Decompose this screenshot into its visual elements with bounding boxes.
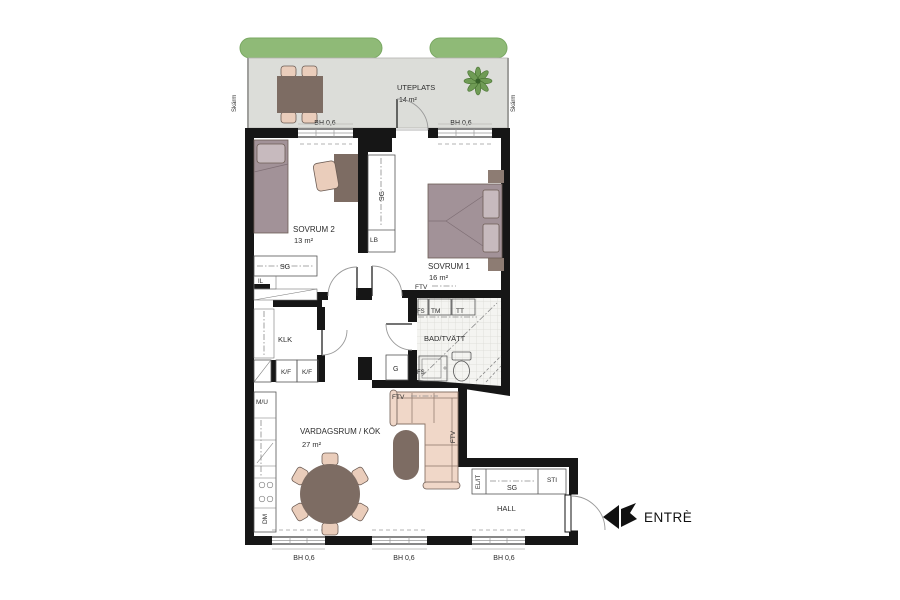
hedge-left <box>240 38 382 58</box>
wall-segment <box>427 536 472 545</box>
bed-pillow <box>483 190 499 218</box>
il-label: IL <box>258 279 264 285</box>
klk-label: KLK <box>278 335 292 344</box>
wall-segment <box>402 290 510 298</box>
wall-segment <box>458 379 467 467</box>
kf-label: K/F <box>281 369 291 376</box>
burner <box>267 482 273 488</box>
closet-sg-sovrum2: SG IL <box>254 256 317 300</box>
nightstand <box>488 170 504 183</box>
entry-door <box>565 494 605 532</box>
kitchen-counter <box>254 392 276 532</box>
hall-label: HALL <box>497 504 516 513</box>
patio-chair <box>281 66 296 77</box>
dm-label: DM <box>262 514 269 524</box>
uteplats-area: 14 m² <box>399 97 418 104</box>
hedge-right <box>430 38 507 58</box>
wall-segment <box>273 300 322 307</box>
entry-door-leaf <box>565 495 571 532</box>
wall-segment <box>317 307 325 330</box>
burner <box>267 496 273 502</box>
window-living-2 <box>372 530 427 549</box>
desk-chair <box>313 160 340 191</box>
floor-plan: Skärm Skärm UTEPLATS 14 m² BH 0,6 <box>0 0 900 600</box>
g-label: G <box>393 366 398 373</box>
kitchen-units-north: K/F K/F <box>254 360 318 382</box>
ftv-label: FTV <box>392 394 405 401</box>
kf-label: K/F <box>302 369 312 376</box>
wall-segment <box>358 137 368 253</box>
sg-label: SG <box>379 191 386 201</box>
sg-label: SG <box>507 485 517 492</box>
wall-segment <box>458 458 578 467</box>
fs-label: FS <box>417 309 425 315</box>
patio-table <box>277 76 323 113</box>
wall-segment <box>317 292 328 300</box>
wall-segment <box>356 288 372 300</box>
wall-segment <box>366 137 392 152</box>
wall-segment <box>569 467 578 494</box>
burner <box>259 496 265 502</box>
ftv-label: FTV <box>415 284 428 291</box>
floor-plan-page: Skärm Skärm UTEPLATS 14 m² BH 0,6 <box>0 0 900 600</box>
bh-label: BH 0,6 <box>393 555 415 562</box>
sovrum2-label: SOVRUM 2 <box>293 225 335 234</box>
sovrum1-door <box>372 266 402 296</box>
kitchen-run: M/U DM <box>254 392 276 532</box>
mu-label: M/U <box>256 399 268 406</box>
room-sovrum2: SOVRUM 2 13 m² SG IL <box>254 140 358 300</box>
ftv-label: FTV <box>450 430 457 443</box>
wall-segment <box>353 128 396 138</box>
room-klk: KLK <box>254 309 292 358</box>
entrance: ENTRÈ <box>603 503 692 529</box>
living-label: VARDAGSRUM / KÖK <box>300 427 381 436</box>
sti-label: STI <box>547 477 557 484</box>
sovrum2-area: 13 m² <box>294 236 314 245</box>
lb-label: LB <box>370 237 378 244</box>
sovrum1-area: 16 m² <box>429 273 449 282</box>
elit-label: EL/IT <box>476 474 482 489</box>
room-hall: EL/IT SG STI HALL <box>472 469 566 513</box>
patio-chair <box>281 112 296 123</box>
wall-segment <box>569 531 578 545</box>
living-area: 27 m² <box>302 440 322 449</box>
tt-label: TT <box>456 308 464 315</box>
sovrum2-door <box>328 267 357 296</box>
sg-label: SG <box>280 264 290 271</box>
fs-label: FS <box>417 370 425 376</box>
uteplats-label: UTEPLATS <box>397 83 435 92</box>
sovrum1-label: SOVRUM 1 <box>428 262 470 271</box>
hedges <box>240 38 507 58</box>
wall-segment <box>408 298 417 322</box>
bed-pillow <box>257 144 285 163</box>
entre-label: ENTRÈ <box>644 510 692 525</box>
window-hall <box>472 530 525 549</box>
g-closet: G <box>386 355 408 380</box>
bathroom-label: BAD/TVÄTT <box>424 334 466 343</box>
entrance-arrow-icon <box>603 503 637 529</box>
bh-label: BH 0,6 <box>493 555 515 562</box>
dining-table <box>300 464 360 524</box>
burner <box>259 482 265 488</box>
wall-segment <box>245 128 254 545</box>
wall-segment <box>408 350 417 380</box>
room-living: M/U DM VARDAGSRUM / KÖK 27 m² FTV <box>254 390 460 535</box>
window-living-1 <box>272 530 325 549</box>
plant-icon <box>464 67 492 95</box>
wall-segment <box>325 536 372 545</box>
bh-label: BH 0,6 <box>293 555 315 562</box>
coffee-table <box>393 430 419 480</box>
dining-set <box>291 453 369 535</box>
wall-segment <box>358 357 372 380</box>
dining-chair <box>322 523 338 535</box>
closet-strip: SG LB <box>368 155 395 252</box>
nightstand <box>488 258 504 271</box>
patio-chair <box>302 66 317 77</box>
wall-segment <box>271 360 276 382</box>
bathroom-door <box>386 324 412 350</box>
wall-segment <box>245 536 272 545</box>
patio: Skärm Skärm UTEPLATS 14 m² BH 0,6 <box>232 58 517 128</box>
tm-label: TM <box>431 308 440 315</box>
dining-chair <box>322 453 338 465</box>
room-sovrum1: SOVRUM 1 16 m² FTV <box>415 170 504 291</box>
room-bathroom: FS TM TT BAD/TVÄTT FS <box>417 298 501 386</box>
bed-pillow <box>483 224 499 252</box>
sofa-armrest <box>423 482 460 489</box>
screen-left-label: Skärm <box>232 95 238 112</box>
wall-segment <box>428 128 438 138</box>
klk-door <box>322 330 347 355</box>
screen-right-label: Skärm <box>511 95 517 112</box>
